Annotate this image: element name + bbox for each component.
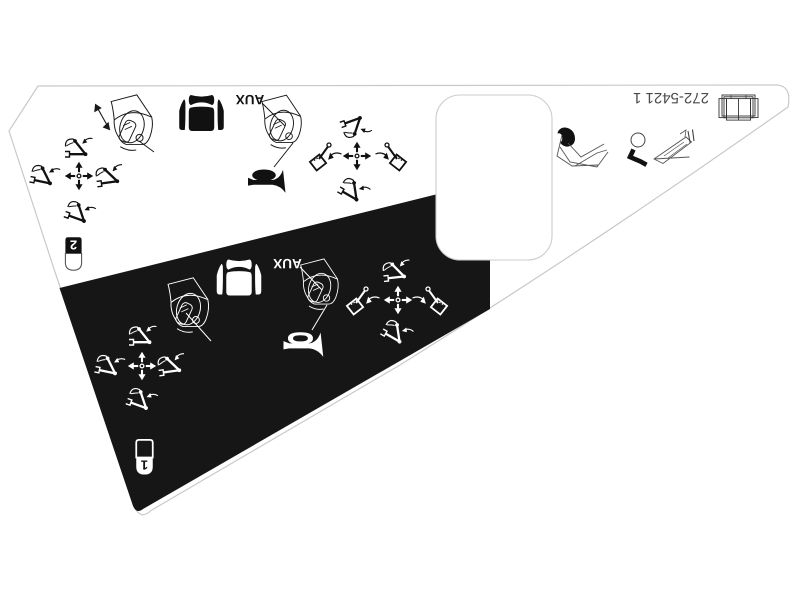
svg-text:AUX: AUX <box>273 256 302 271</box>
svg-text:AUX: AUX <box>236 92 265 107</box>
svg-text:1: 1 <box>140 457 148 472</box>
svg-text:272-5421 1: 272-5421 1 <box>633 89 709 106</box>
svg-text:2: 2 <box>70 237 78 252</box>
